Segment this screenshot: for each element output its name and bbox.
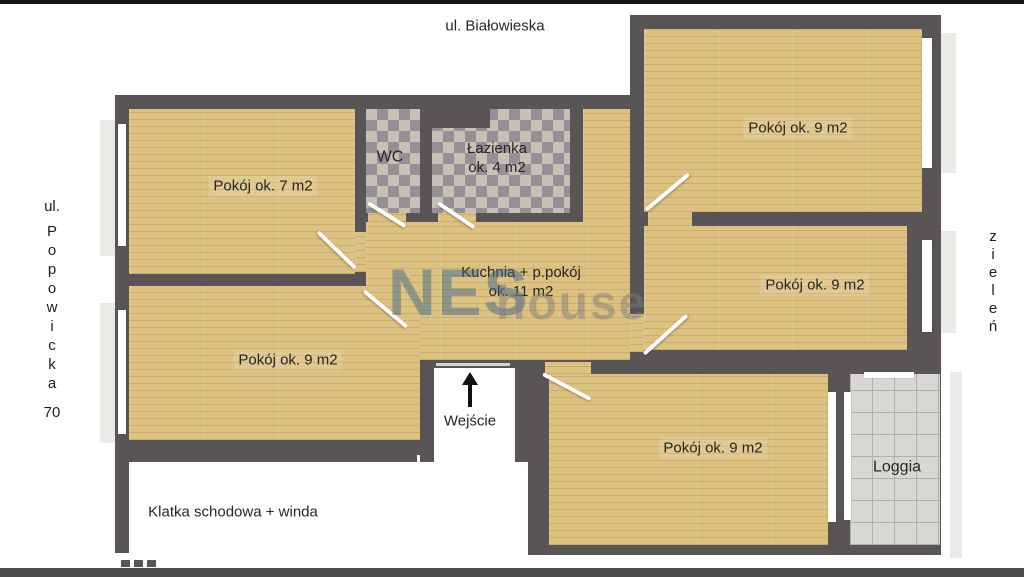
window-room-mid-right xyxy=(922,240,932,332)
stair-step-icon xyxy=(147,560,156,567)
loggia-label: Loggia xyxy=(873,458,921,477)
door-gap-top-right-room xyxy=(648,212,692,226)
street-label-top: ul. Białowieska xyxy=(445,17,544,36)
sill-right-mid xyxy=(941,231,956,333)
bottom-frame-bar xyxy=(0,568,1024,577)
floor-plan: ul. Białowieska ul. P o p o w i c k a 70… xyxy=(0,0,1024,577)
window-loggia-top xyxy=(864,372,914,378)
window-room-bottom xyxy=(828,392,836,522)
sill-left-top xyxy=(100,120,115,256)
street-label-right: z i e l e ń xyxy=(989,228,997,336)
door-gap-mid-right-room xyxy=(630,314,644,352)
kitchen-label: Kuchnia + p.pokój ok. 11 m2 xyxy=(461,263,581,301)
stair-step-icon xyxy=(134,560,143,567)
wall-staircase-top xyxy=(115,440,417,462)
bathroom-label: Łazienka ok. 4 m2 xyxy=(467,139,527,177)
top-frame-bar xyxy=(0,0,1024,4)
street-left-number: 70 xyxy=(44,403,61,422)
window-room-left xyxy=(118,124,126,246)
staircase-label: Klatka schodowa + winda xyxy=(148,503,318,522)
stair-step-icon xyxy=(121,560,130,567)
entrance-door-line xyxy=(436,363,510,366)
room-bottom-label: Pokój ok. 9 m2 xyxy=(658,438,767,459)
door-gap-bottom-room xyxy=(545,362,591,374)
entrance-arrow-icon xyxy=(462,372,478,385)
window-loggia-left xyxy=(844,392,851,520)
window-room-bottom-left xyxy=(118,310,126,434)
entrance-arrow-stem xyxy=(468,385,472,407)
door-gap-bottom-left-room xyxy=(366,274,410,286)
room-top-right-label: Pokój ok. 9 m2 xyxy=(743,118,852,139)
room-left-label: Pokój ok. 7 m2 xyxy=(208,176,317,197)
room-bottom-floor xyxy=(549,374,828,545)
sill-right-loggia xyxy=(950,372,962,558)
sill-left-bottom xyxy=(100,303,115,443)
bathroom-shaft-notch xyxy=(432,109,490,128)
door-gap-room-left xyxy=(355,232,366,272)
street-left-prefix: ul. xyxy=(44,197,60,216)
wc-label: WC xyxy=(377,148,404,167)
sill-right-top xyxy=(941,33,956,173)
room-mid-right-label: Pokój ok. 9 m2 xyxy=(760,275,869,296)
room-bottom-left-label: Pokój ok. 9 m2 xyxy=(233,350,342,371)
hall-corridor-floor xyxy=(583,109,630,226)
window-room-top-right xyxy=(922,38,932,168)
entrance-label: Wejście xyxy=(444,412,496,431)
street-left-name: P o p o w i c k a xyxy=(47,222,58,393)
